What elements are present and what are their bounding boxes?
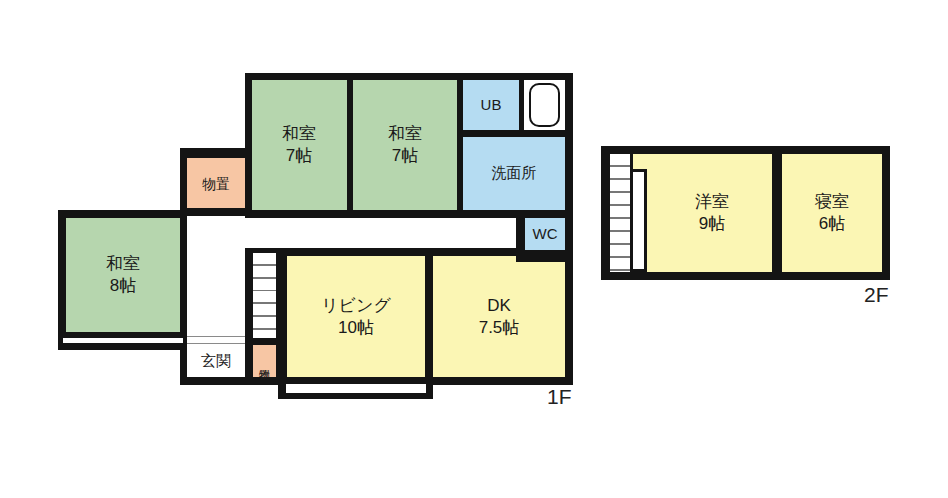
label-monooki-small: 物置: [259, 360, 270, 362]
label-yoshitsu: 洋室 9帖: [695, 191, 729, 235]
stair-railing-2f: [630, 169, 647, 272]
veranda: [286, 384, 426, 393]
label-washitsu-7a: 和室 7帖: [282, 123, 316, 167]
label-monooki-left: 物置: [202, 175, 230, 193]
floor-label-2f: 2F: [864, 283, 889, 307]
entrance-door-line: [187, 336, 245, 344]
label-dk: DK 7.5帖: [479, 295, 520, 339]
staircase-1f: [253, 253, 276, 338]
corridor-left: [187, 216, 245, 336]
window-line-washitsu8: [63, 338, 183, 343]
label-living: リビング 10帖: [321, 295, 391, 339]
staircase-2f: [610, 154, 630, 272]
label-wc: WC: [533, 224, 558, 244]
label-senmenjo: 洗面所: [492, 163, 537, 183]
label-shinshitsu: 寝室 6帖: [815, 191, 849, 235]
label-washitsu-8: 和室 8帖: [106, 253, 140, 297]
label-genkan: 玄関: [201, 351, 231, 371]
bathtub-icon: [529, 83, 560, 127]
label-washitsu-7b: 和室 7帖: [388, 123, 422, 167]
label-ub: UB: [481, 95, 502, 115]
floor-label-1f: 1F: [547, 385, 572, 409]
floor-plan-canvas: 和室 7帖 和室 7帖 UB 洗面所 WC 和室 8帖 物置 リビング 10帖 …: [0, 0, 948, 498]
